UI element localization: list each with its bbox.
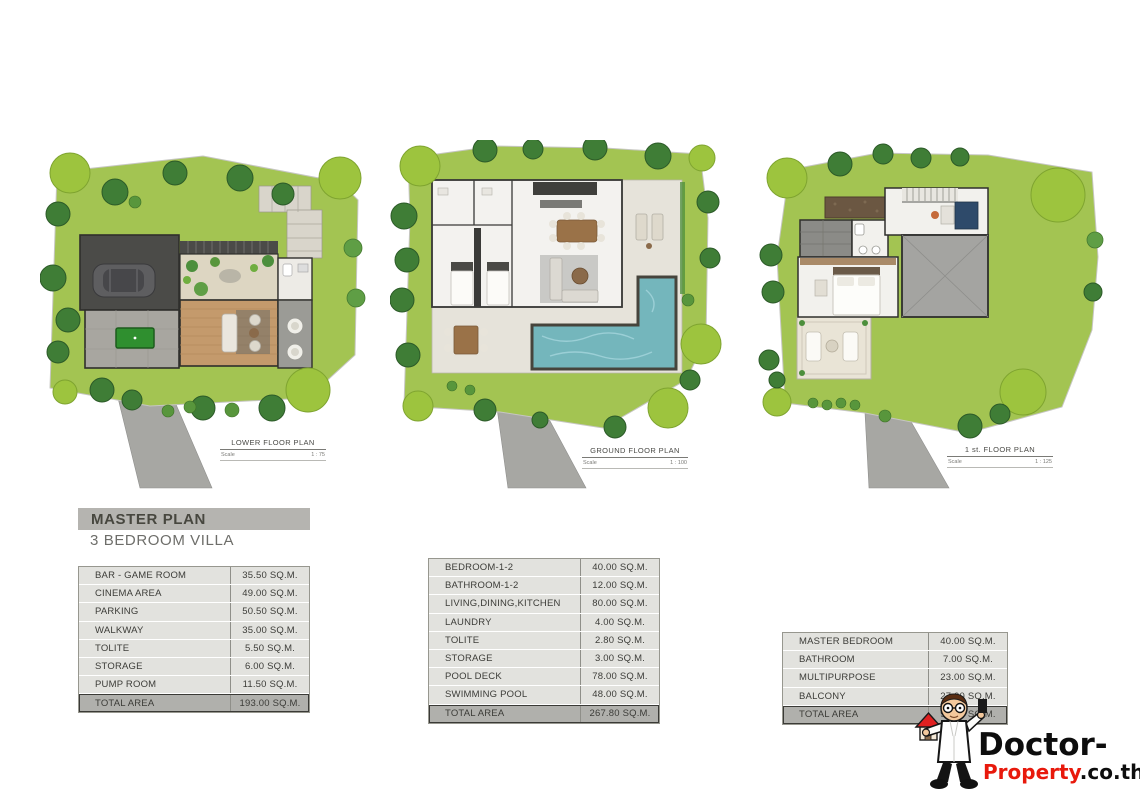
area-value: 23.00 SQ.M. (929, 669, 1007, 686)
area-label: BEDROOM-1-2 (429, 559, 581, 576)
plan-ground-floor-drawing (390, 140, 725, 490)
desk (955, 202, 978, 229)
master-bedroom (798, 257, 898, 317)
area-label: PUMP ROOM (79, 676, 231, 693)
area-label: BATHROOM (783, 651, 929, 668)
scale-value: 1 : 125 (1035, 459, 1052, 465)
area-value: 78.00 SQ.M. (581, 668, 659, 685)
area-value: 40.00 SQ.M. (929, 633, 1007, 650)
table-row: BAR - GAME ROOM35.50 SQ.M. (79, 567, 309, 585)
area-table-ground: BEDROOM-1-240.00 SQ.M.BATHROOM-1-212.00 … (428, 558, 660, 724)
brand-name-red: Property (983, 760, 1080, 784)
area-value: 40.00 SQ.M. (581, 559, 659, 576)
area-label: SWIMMING POOL (429, 686, 581, 703)
area-label: PARKING (79, 603, 231, 620)
plan-first-floor-drawing (755, 140, 1105, 490)
table-row: TOLITE2.80 SQ.M. (429, 632, 659, 650)
table-row: LAUNDRY4.00 SQ.M. (429, 614, 659, 632)
page-subtitle: 3 BEDROOM VILLA (90, 532, 234, 549)
area-label: TOLITE (79, 640, 231, 657)
toilet-pump-rooms (278, 258, 312, 368)
master-plan-title-bar: MASTER PLAN (78, 508, 310, 530)
scale-value: 1 : 75 (311, 452, 325, 458)
plan-caption-title: GROUND FLOOR PLAN (582, 446, 688, 458)
brand-suffix: .co.th (1080, 760, 1140, 784)
area-label: WALKWAY (79, 622, 231, 639)
bar-game-room (85, 310, 179, 368)
area-value: 6.00 SQ.M. (231, 658, 309, 675)
parking-room (80, 235, 179, 310)
area-label: BATHROOM-1-2 (429, 577, 581, 594)
area-label: TOTAL AREA (429, 705, 581, 723)
area-label: LAUNDRY (429, 614, 581, 631)
area-table-lower: BAR - GAME ROOM35.50 SQ.M.CINEMA AREA49.… (78, 566, 310, 713)
bed (487, 262, 509, 305)
area-value: 80.00 SQ.M. (581, 595, 659, 612)
area-value: 4.00 SQ.M. (581, 614, 659, 631)
table-row: PUMP ROOM11.50 SQ.M. (79, 676, 309, 694)
area-value: 193.00 SQ.M. (231, 694, 309, 712)
kitchen-counter (533, 182, 597, 195)
table-total-row: TOTAL AREA267.80 SQ.M. (429, 705, 659, 723)
table-row: STORAGE6.00 SQ.M. (79, 658, 309, 676)
table-row: MASTER BEDROOM40.00 SQ.M. (783, 633, 1007, 651)
living-sofa (540, 255, 598, 303)
area-label: MULTIPURPOSE (783, 669, 929, 686)
walk-in-closet (800, 220, 852, 257)
table-row: BEDROOM-1-240.00 SQ.M. (429, 559, 659, 577)
table-row: SWIMMING POOL48.00 SQ.M. (429, 686, 659, 704)
table-row: BATHROOM-1-212.00 SQ.M. (429, 577, 659, 595)
area-label: STORAGE (79, 658, 231, 675)
area-value: 2.80 SQ.M. (581, 632, 659, 649)
plan-lower-floor: LOWER FLOOR PLAN Scale 1 : 75 (40, 140, 375, 490)
area-label: TOTAL AREA (783, 706, 929, 724)
roof-area (902, 235, 988, 317)
area-label: CINEMA AREA (79, 585, 231, 602)
area-value: 3.00 SQ.M. (581, 650, 659, 667)
brand-wordmark: Doctor- Property.co.th (978, 730, 1140, 782)
area-value: 7.00 SQ.M. (929, 651, 1007, 668)
area-value: 50.50 SQ.M. (231, 603, 309, 620)
cinema-room (180, 300, 278, 366)
area-label: STORAGE (429, 650, 581, 667)
area-value: 35.50 SQ.M. (231, 567, 309, 584)
plan-caption-title: 1 st. FLOOR PLAN (947, 445, 1053, 457)
plan-ground-floor: GROUND FLOOR PLAN Scale 1 : 100 (390, 140, 725, 490)
scale-label: Scale (948, 459, 962, 465)
area-label: POOL DECK (429, 668, 581, 685)
scale-value: 1 : 100 (670, 460, 687, 466)
bathroom (852, 220, 888, 257)
scale-label: Scale (583, 460, 597, 466)
bed (451, 262, 473, 305)
plan-first-caption: 1 st. FLOOR PLAN Scale 1 : 125 (947, 445, 1053, 468)
table-row: LIVING,DINING,KITCHEN80.00 SQ.M. (429, 595, 659, 613)
area-label: LIVING,DINING,KITCHEN (429, 595, 581, 612)
table-row: TOLITE5.50 SQ.M. (79, 640, 309, 658)
area-label: TOTAL AREA (79, 694, 231, 712)
table-total-row: TOTAL AREA193.00 SQ.M. (79, 694, 309, 712)
area-value: 267.80 SQ.M. (581, 705, 659, 723)
table-row: POOL DECK78.00 SQ.M. (429, 668, 659, 686)
plan-first-floor: 1 st. FLOOR PLAN Scale 1 : 125 (755, 140, 1105, 490)
page-title: MASTER PLAN (91, 511, 206, 528)
villa-interior (432, 180, 622, 307)
plan-caption-title: LOWER FLOOR PLAN (220, 438, 326, 450)
plan-ground-caption: GROUND FLOOR PLAN Scale 1 : 100 (582, 446, 688, 469)
table-row: PARKING50.50 SQ.M. (79, 603, 309, 621)
plan-lower-caption: LOWER FLOOR PLAN Scale 1 : 75 (220, 438, 326, 461)
area-value: 49.00 SQ.M. (231, 585, 309, 602)
bed-headboard (833, 267, 880, 275)
area-label: BALCONY (783, 688, 929, 705)
balcony (797, 317, 871, 379)
area-value: 5.50 SQ.M. (231, 640, 309, 657)
table-row: STORAGE3.00 SQ.M. (429, 650, 659, 668)
brand-logo: Doctor- Property.co.th (912, 690, 1140, 802)
table-row: CINEMA AREA49.00 SQ.M. (79, 585, 309, 603)
courtyard-garden (180, 241, 278, 300)
area-value: 11.50 SQ.M. (231, 676, 309, 693)
area-label: BAR - GAME ROOM (79, 567, 231, 584)
area-value: 35.00 SQ.M. (231, 622, 309, 639)
pebble-roof-strip (825, 197, 885, 218)
table-row: MULTIPURPOSE23.00 SQ.M. (783, 669, 1007, 687)
scale-label: Scale (221, 452, 235, 458)
area-value: 48.00 SQ.M. (581, 686, 659, 703)
table-row: BATHROOM7.00 SQ.M. (783, 651, 1007, 669)
area-label: MASTER BEDROOM (783, 633, 929, 650)
brand-name-black: Doctor- (978, 730, 1140, 761)
area-value: 12.00 SQ.M. (581, 577, 659, 594)
table-row: WALKWAY35.00 SQ.M. (79, 622, 309, 640)
multipurpose-room (885, 188, 988, 235)
area-label: TOLITE (429, 632, 581, 649)
